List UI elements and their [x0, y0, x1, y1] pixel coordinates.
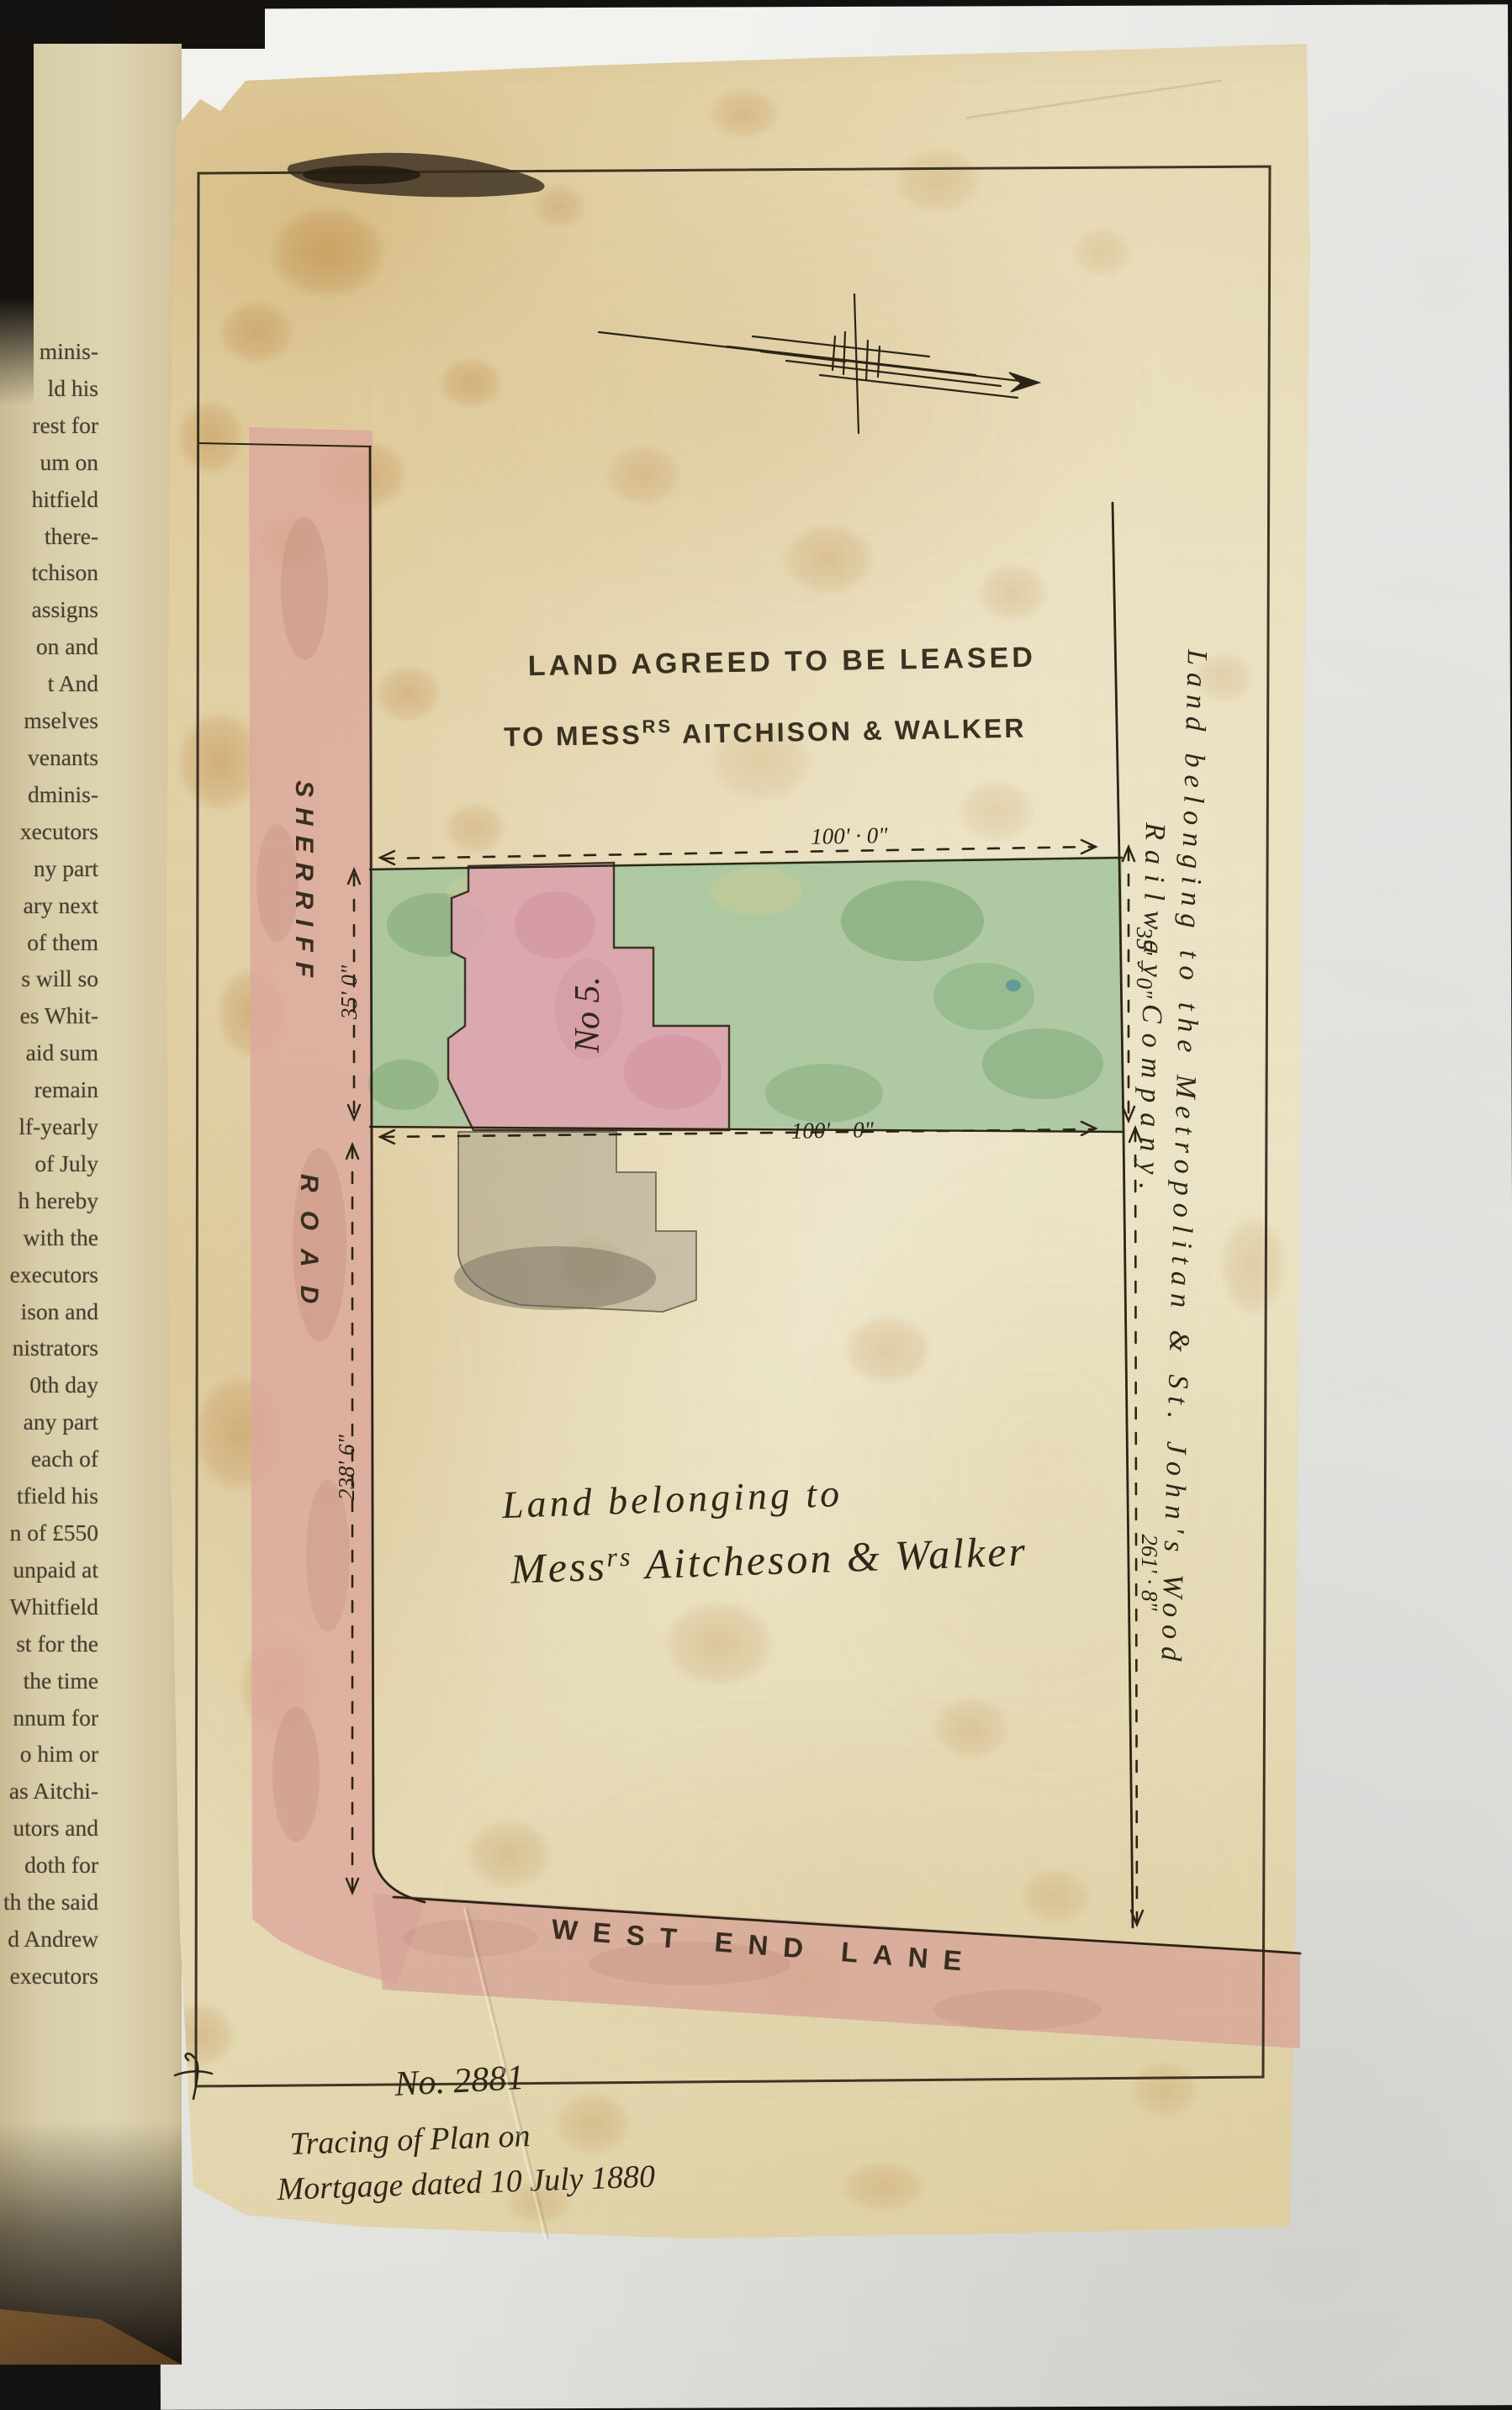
road-label-road: ROAD: [295, 1174, 323, 1322]
dim-top-width: 100' · 0": [811, 822, 889, 849]
building-label: No 5.: [568, 976, 607, 1054]
ink-smudge: [288, 153, 545, 198]
outbuilding-outline: [454, 1132, 696, 1312]
plan-title: LAND AGREED TO BE LEASED TO MESSRS AITCH…: [504, 642, 1036, 753]
plan-drawing: No 5.: [0, 0, 1512, 2407]
railway-land-label-2: Railway Company.: [1133, 822, 1171, 1200]
owner-land-label-2: Messrs Aitcheson & Walker: [509, 1527, 1028, 1592]
road-label-sherriff: SHERRIFF: [290, 780, 318, 987]
corner-mark: [175, 2053, 212, 2099]
note-line1: Tracing of Plan on: [289, 2118, 531, 2162]
sherriff-road: [249, 427, 425, 1985]
title-line1: LAND AGREED TO BE LEASED: [527, 642, 1036, 683]
dim-sherriff-frontage: 238' 6": [334, 1434, 359, 1500]
mortgage-note: No. 2881 Tracing of Plan on Mortgage dat…: [276, 2059, 656, 2207]
scan-stage: minis-ld hisrest forum onhitfieldthere-t…: [0, 0, 1512, 2407]
dim-bottom-width: 100' – 0": [791, 1117, 875, 1144]
note-line2: Mortgage dated 10 July 1880: [276, 2159, 656, 2207]
compass-north-arrow: [599, 294, 1039, 433]
dim-left-depth: 35' 0": [336, 965, 362, 1020]
owner-land-label-1: Land belonging to: [500, 1472, 843, 1526]
west-end-lane-road: [373, 1894, 1300, 2048]
title-line2: TO MESSRS AITCHISON & WALKER: [504, 710, 1027, 753]
